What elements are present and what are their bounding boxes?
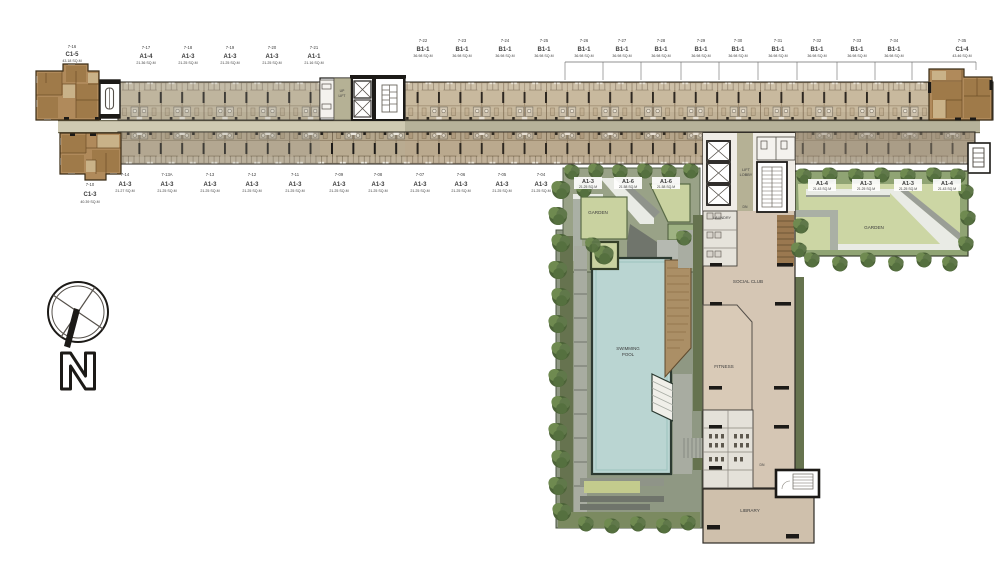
- svg-text:36.98 SQ.M: 36.98 SQ.M: [413, 54, 432, 58]
- svg-text:B1-1: B1-1: [694, 47, 708, 53]
- svg-text:A1-3: A1-3: [181, 54, 195, 60]
- svg-text:21.58 SQ.M: 21.58 SQ.M: [619, 185, 637, 189]
- svg-text:43.46 SQ.M: 43.46 SQ.M: [952, 54, 971, 58]
- svg-text:A1-3: A1-3: [245, 182, 259, 188]
- svg-text:B1-1: B1-1: [416, 47, 430, 53]
- svg-text:UP: UP: [340, 89, 345, 93]
- svg-text:21.25 SQ.M: 21.25 SQ.M: [492, 189, 511, 193]
- svg-text:21.25 SQ.M: 21.25 SQ.M: [857, 187, 875, 191]
- svg-text:7-18: 7-18: [184, 45, 193, 50]
- svg-text:A1-3: A1-3: [203, 182, 217, 188]
- svg-text:36.98 SQ.M: 36.98 SQ.M: [728, 54, 747, 58]
- svg-text:B1-1: B1-1: [498, 47, 512, 53]
- svg-text:B1-1: B1-1: [654, 47, 668, 53]
- svg-text:B1-1: B1-1: [537, 47, 551, 53]
- svg-text:21.25 SQ.M: 21.25 SQ.M: [410, 189, 429, 193]
- svg-text:A1-1: A1-1: [307, 54, 321, 60]
- svg-text:7-11: 7-11: [291, 172, 300, 177]
- svg-text:7-08: 7-08: [374, 172, 383, 177]
- svg-text:SOCIAL CLUB: SOCIAL CLUB: [733, 279, 763, 284]
- svg-text:21.25 SQ.M: 21.25 SQ.M: [579, 185, 597, 189]
- svg-text:LIFT: LIFT: [742, 168, 750, 172]
- svg-text:GARDEN: GARDEN: [864, 225, 884, 230]
- svg-text:21.43 SQ.M: 21.43 SQ.M: [938, 187, 956, 191]
- svg-text:7-28: 7-28: [657, 38, 666, 43]
- svg-text:7-04: 7-04: [537, 172, 546, 177]
- svg-text:7-22: 7-22: [419, 38, 428, 43]
- svg-text:7-31: 7-31: [774, 38, 783, 43]
- svg-text:7-21: 7-21: [310, 45, 319, 50]
- svg-text:7-34: 7-34: [890, 38, 899, 43]
- svg-text:FITNESS: FITNESS: [714, 364, 733, 369]
- svg-text:7-20: 7-20: [268, 45, 277, 50]
- svg-text:7-16: 7-16: [68, 44, 77, 49]
- svg-text:B1-1: B1-1: [850, 47, 864, 53]
- svg-text:DN: DN: [760, 463, 765, 467]
- svg-text:43.18 SQ.M: 43.18 SQ.M: [62, 59, 81, 63]
- svg-text:SWIMMING: SWIMMING: [616, 346, 640, 351]
- svg-text:C1-4: C1-4: [955, 47, 969, 53]
- svg-text:7-29: 7-29: [697, 38, 706, 43]
- svg-text:21.25 SQ.M: 21.25 SQ.M: [178, 61, 197, 65]
- svg-text:36.98 SQ.M: 36.98 SQ.M: [495, 54, 514, 58]
- svg-text:36.98 SQ.M: 36.98 SQ.M: [691, 54, 710, 58]
- svg-text:GARDEN: GARDEN: [588, 210, 608, 215]
- svg-text:7-23: 7-23: [458, 38, 467, 43]
- svg-text:A1-3: A1-3: [223, 54, 237, 60]
- svg-text:DN: DN: [743, 205, 748, 209]
- svg-text:LAUNDRY: LAUNDRY: [713, 216, 732, 220]
- svg-text:7-12: 7-12: [248, 172, 257, 177]
- svg-text:21.25 SQ.M: 21.25 SQ.M: [242, 189, 261, 193]
- svg-text:7-09: 7-09: [335, 172, 344, 177]
- svg-text:7-32: 7-32: [813, 38, 822, 43]
- svg-text:7-25: 7-25: [540, 38, 549, 43]
- svg-text:36.98 SQ.M: 36.98 SQ.M: [534, 54, 553, 58]
- svg-text:7-24: 7-24: [501, 38, 510, 43]
- svg-text:7-13A: 7-13A: [161, 172, 172, 177]
- svg-text:21.25 SQ.M: 21.25 SQ.M: [368, 189, 387, 193]
- svg-text:A1-3: A1-3: [495, 182, 509, 188]
- svg-text:7-33: 7-33: [853, 38, 862, 43]
- svg-text:A1-4: A1-4: [139, 54, 153, 60]
- svg-text:B1-1: B1-1: [771, 47, 785, 53]
- svg-text:21.25 SQ.M: 21.25 SQ.M: [451, 189, 470, 193]
- svg-text:36.98 SQ.M: 36.98 SQ.M: [847, 54, 866, 58]
- svg-text:36.98 SQ.M: 36.98 SQ.M: [651, 54, 670, 58]
- svg-text:21.58 SQ.M: 21.58 SQ.M: [657, 185, 675, 189]
- svg-text:LOBBY: LOBBY: [740, 173, 753, 177]
- svg-text:21.25 SQ.M: 21.25 SQ.M: [329, 189, 348, 193]
- svg-text:B1-1: B1-1: [731, 47, 745, 53]
- svg-text:B1-1: B1-1: [615, 47, 629, 53]
- svg-text:36.98 SQ.M: 36.98 SQ.M: [612, 54, 631, 58]
- svg-text:7-14: 7-14: [121, 172, 130, 177]
- svg-text:36.98 SQ.M: 36.98 SQ.M: [884, 54, 903, 58]
- svg-text:21.43 SQ.M: 21.43 SQ.M: [813, 187, 831, 191]
- svg-text:7-10: 7-10: [86, 182, 95, 187]
- svg-text:7-30: 7-30: [734, 38, 743, 43]
- svg-text:7-26: 7-26: [580, 38, 589, 43]
- svg-text:21.25 SQ.M: 21.25 SQ.M: [200, 189, 219, 193]
- svg-text:7-19: 7-19: [226, 45, 235, 50]
- svg-text:A1-3: A1-3: [332, 182, 346, 188]
- svg-text:40.39 SQ.M: 40.39 SQ.M: [80, 200, 99, 204]
- svg-text:21.25 SQ.M: 21.25 SQ.M: [285, 189, 304, 193]
- svg-text:A1-3: A1-3: [371, 182, 385, 188]
- svg-text:B1-1: B1-1: [455, 47, 469, 53]
- svg-text:36.98 SQ.M: 36.98 SQ.M: [768, 54, 787, 58]
- svg-text:21.25 SQ.M: 21.25 SQ.M: [899, 187, 917, 191]
- svg-text:A1-3: A1-3: [160, 182, 174, 188]
- svg-text:21.25 SQ.M: 21.25 SQ.M: [157, 189, 176, 193]
- svg-text:7-06: 7-06: [457, 172, 466, 177]
- svg-text:LIFT: LIFT: [339, 94, 346, 98]
- svg-text:21.25 SQ.M: 21.25 SQ.M: [262, 61, 281, 65]
- svg-text:A1-3: A1-3: [534, 182, 548, 188]
- svg-text:7-07: 7-07: [416, 172, 425, 177]
- svg-text:36.98 SQ.M: 36.98 SQ.M: [574, 54, 593, 58]
- svg-text:36.98 SQ.M: 36.98 SQ.M: [807, 54, 826, 58]
- svg-text:21.25 SQ.M: 21.25 SQ.M: [531, 189, 550, 193]
- svg-text:7-17: 7-17: [142, 45, 151, 50]
- svg-text:21.27 SQ.M: 21.27 SQ.M: [115, 189, 134, 193]
- svg-text:B1-1: B1-1: [577, 47, 591, 53]
- svg-text:A1-3: A1-3: [413, 182, 427, 188]
- svg-text:C1-3: C1-3: [83, 192, 97, 198]
- svg-text:B1-1: B1-1: [810, 47, 824, 53]
- svg-text:A1-3: A1-3: [454, 182, 468, 188]
- svg-text:A1-3: A1-3: [265, 54, 279, 60]
- svg-text:B1-1: B1-1: [887, 47, 901, 53]
- svg-text:C1-5: C1-5: [65, 52, 79, 58]
- svg-text:21.36 SQ.M: 21.36 SQ.M: [136, 61, 155, 65]
- svg-text:21.25 SQ.M: 21.25 SQ.M: [220, 61, 239, 65]
- svg-text:7-27: 7-27: [618, 38, 627, 43]
- svg-text:21.16 SQ.M: 21.16 SQ.M: [304, 61, 323, 65]
- svg-text:LIBRARY: LIBRARY: [740, 508, 760, 513]
- svg-text:36.98 SQ.M: 36.98 SQ.M: [452, 54, 471, 58]
- svg-text:7-13: 7-13: [206, 172, 215, 177]
- svg-text:7-05: 7-05: [498, 172, 507, 177]
- svg-text:A1-3: A1-3: [288, 182, 302, 188]
- svg-text:7-35: 7-35: [958, 38, 967, 43]
- svg-text:A1-3: A1-3: [118, 182, 132, 188]
- svg-text:POOL: POOL: [622, 352, 635, 357]
